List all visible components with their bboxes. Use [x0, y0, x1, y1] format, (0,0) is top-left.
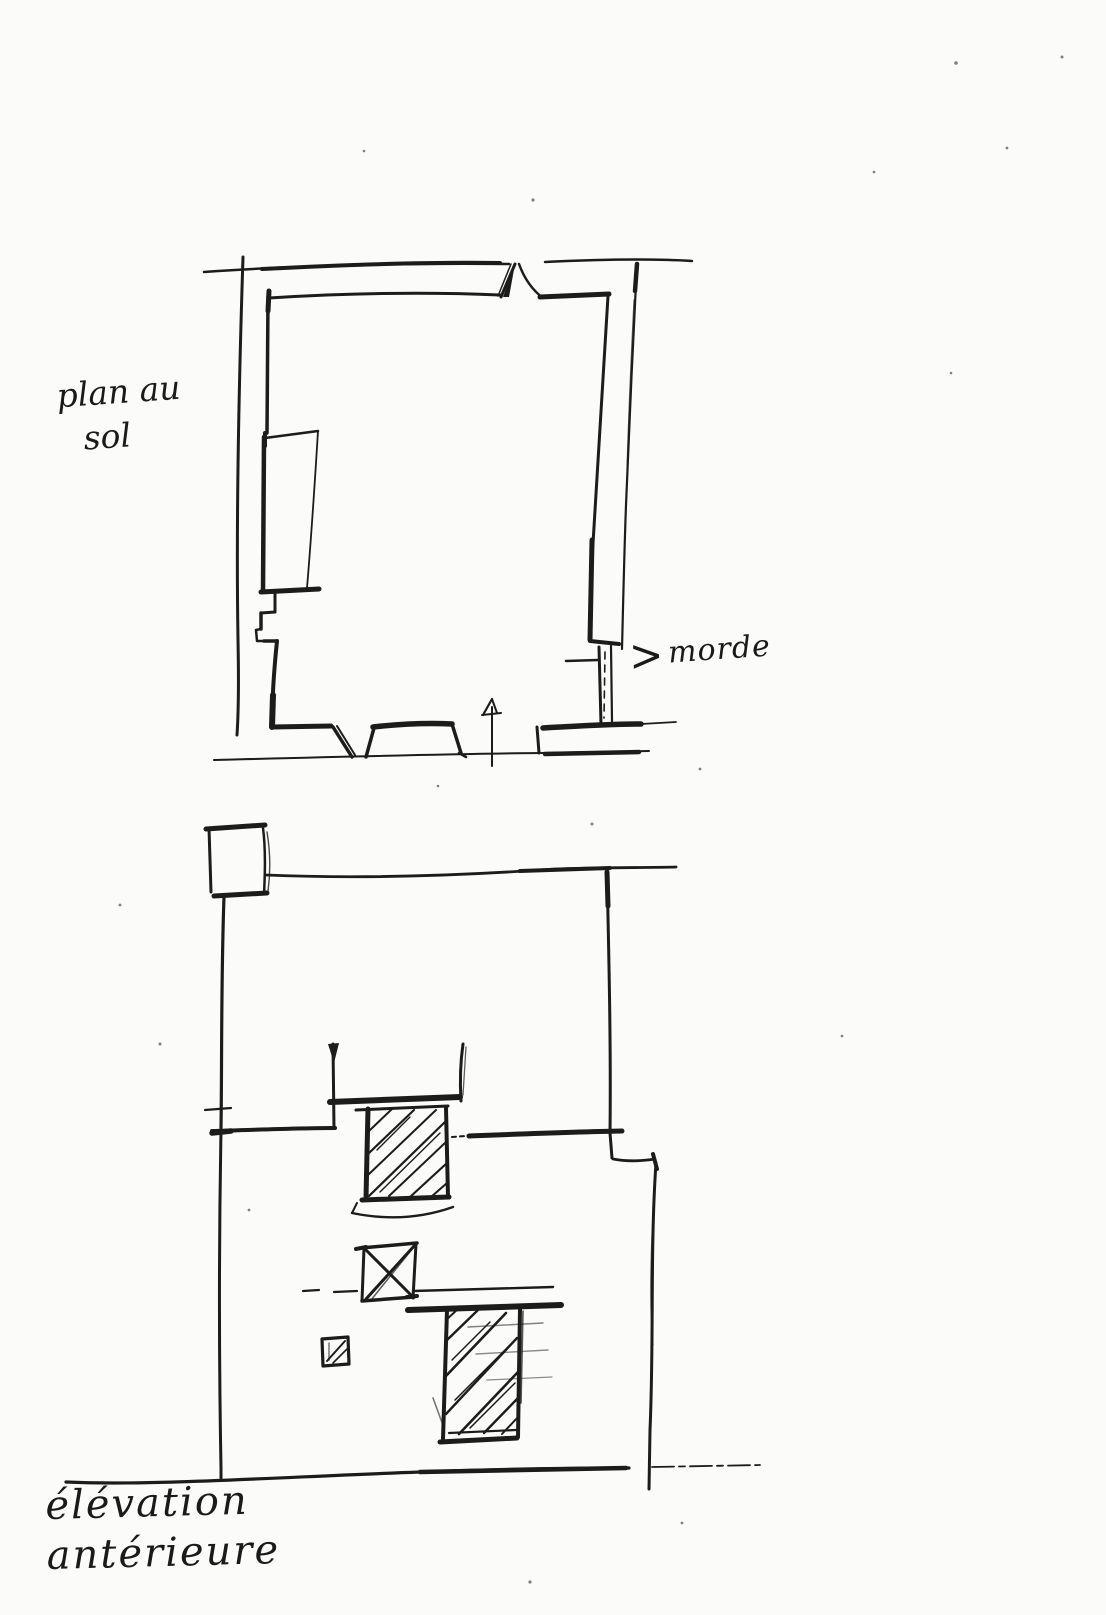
elevation-upper-window — [352, 1106, 453, 1217]
plan-top-wall-notch — [498, 264, 543, 298]
elevation-right-ledge — [452, 1131, 622, 1137]
elevation-label-line2: antérieure — [46, 1525, 281, 1581]
plan-top-wall — [204, 260, 692, 298]
scan-speckles — [119, 56, 1064, 1584]
elevation-crossed-square-window — [303, 1243, 417, 1301]
plan-right-wall-stub — [599, 646, 612, 724]
front-elevation-drawing — [66, 825, 760, 1489]
plan-bottom-wall — [214, 722, 676, 760]
scanned-sketch-page: plan au sol > morde élévation antérieure — [0, 0, 1106, 1615]
elevation-right-wall-upper — [607, 871, 610, 1133]
sketch-canvas — [0, 0, 1106, 1615]
plan-fireplace-recess — [261, 431, 319, 592]
annotation-arrowhead-glyph: > — [628, 629, 664, 682]
elevation-left-wall — [205, 897, 231, 1478]
floor-plan-label-line2: sol — [82, 410, 185, 461]
elevation-label: élévation antérieure — [45, 1475, 281, 1581]
annotation-leader-dash — [566, 660, 598, 661]
floor-plan-label: plan au sol — [55, 366, 185, 462]
plan-entry-arrow — [482, 699, 501, 766]
elevation-chimney — [206, 825, 270, 896]
elevation-roof-line — [266, 867, 676, 877]
plan-left-wall-step — [256, 592, 277, 727]
plan-right-wall — [590, 263, 637, 649]
elevation-door — [433, 1309, 552, 1442]
elevation-small-hatched-square — [322, 1337, 349, 1366]
elevation-left-ledge — [212, 1128, 335, 1133]
elevation-right-wall-jog — [610, 1133, 657, 1489]
elevation-door-beam — [408, 1287, 561, 1310]
elevation-label-line1: élévation — [45, 1475, 280, 1531]
floor-plan-label-line1: plan au — [55, 368, 181, 416]
wall-annotation-text: morde — [667, 628, 772, 670]
floor-plan-drawing — [204, 257, 692, 766]
